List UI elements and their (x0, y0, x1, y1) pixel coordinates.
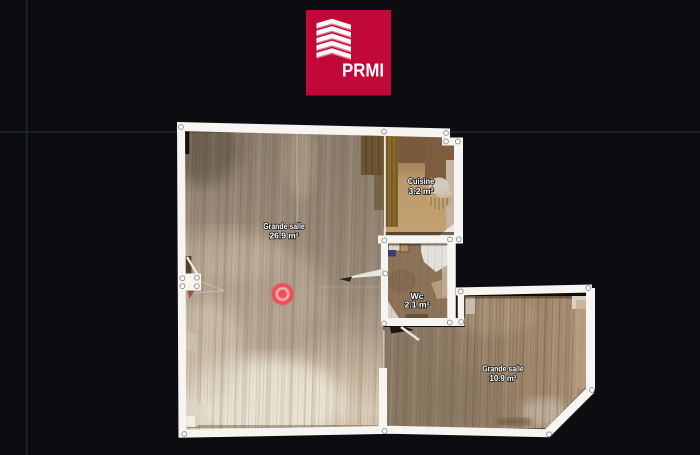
svg-text:Grande salle: Grande salle (263, 222, 305, 231)
svg-text:Grande salle: Grande salle (482, 365, 524, 374)
svg-text:2.1 m²: 2.1 m² (405, 301, 430, 310)
svg-text:3.2 m²: 3.2 m² (409, 187, 434, 196)
svg-text:Cuisine: Cuisine (408, 177, 435, 186)
svg-text:10.9 m²: 10.9 m² (490, 374, 517, 383)
svg-text:PRMI: PRMI (342, 61, 384, 81)
svg-text:26.9 m²: 26.9 m² (270, 232, 299, 241)
